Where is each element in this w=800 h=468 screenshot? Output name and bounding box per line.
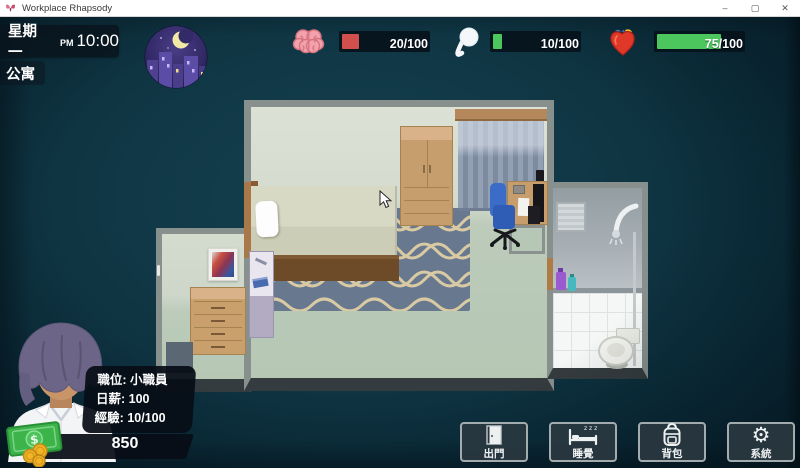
office-chair-seat [493, 205, 515, 229]
dresser[interactable] [190, 287, 246, 355]
money-icon: $ [6, 421, 68, 467]
mood-bar: 20/100 [339, 31, 430, 52]
energy-bar: 10/100 [490, 31, 581, 52]
spirit-icon [452, 27, 482, 61]
maximize-button[interactable]: ▢ [740, 0, 770, 17]
health-bar: 75/100 [654, 31, 745, 52]
info-row-experience: 經驗: 10/100 [95, 409, 193, 428]
wardrobe[interactable] [400, 126, 453, 226]
action-buttons: 出門 z z z 睡覺 背包 [460, 422, 795, 462]
sleep-button[interactable]: z z z 睡覺 [549, 422, 617, 462]
toilet[interactable] [598, 336, 634, 366]
info-row-position: 職位: 小職員 [97, 371, 195, 390]
mouse-cursor [379, 190, 392, 209]
door-icon [483, 424, 505, 446]
backpack-button[interactable]: 背包 [638, 422, 706, 462]
info-row-salary: 日薪: 100 [96, 390, 194, 409]
system-label: 系統 [751, 446, 772, 461]
shampoo-bottle-teal [568, 277, 576, 291]
player-info-panel: 職位: 小職員 日薪: 100 經驗: 10/100 [82, 366, 197, 433]
backpack-icon [661, 424, 683, 446]
location-label: 公寓 [6, 63, 35, 84]
heart-icon [607, 27, 639, 57]
pillow [255, 200, 279, 237]
sleep-label: 睡覺 [573, 446, 594, 461]
health-value: 75/100 [705, 37, 743, 51]
app-butterfly-icon [5, 3, 16, 14]
wall-accent [547, 258, 553, 290]
go-out-label: 出門 [484, 446, 505, 461]
mood-value: 20/100 [390, 37, 428, 51]
location-panel: 公寓 [0, 61, 45, 85]
pc-tower [528, 206, 540, 224]
stat-mood: 20/100 [292, 27, 430, 57]
door-handle [157, 265, 160, 276]
bed-icon: z z z [567, 424, 599, 446]
clock-label: 10:00 [76, 31, 119, 51]
time-panel: 星期一 PM 10:00 [0, 25, 119, 57]
wall-painting [208, 248, 238, 281]
weekday-label: 星期一 [8, 20, 51, 62]
svg-text:z z z: z z z [584, 425, 597, 432]
meridiem-label: PM [60, 38, 74, 48]
money-value: 850 [95, 435, 155, 453]
close-button[interactable]: ✕ [770, 0, 800, 17]
stat-health: 75/100 [607, 27, 745, 57]
minimize-button[interactable]: – [710, 0, 740, 17]
night-moon-icon [143, 24, 209, 90]
go-out-button[interactable]: 出門 [460, 422, 528, 462]
bathroom-window [556, 202, 586, 232]
system-button[interactable]: ⚙ 系統 [727, 422, 795, 462]
game-window: Workplace Rhapsody – ▢ ✕ [0, 0, 800, 468]
gear-icon: ⚙ [752, 425, 771, 446]
wall-accent [244, 182, 251, 258]
stat-energy: 10/100 [452, 27, 581, 61]
curtain-rod [455, 109, 547, 121]
window-title: Workplace Rhapsody [22, 3, 112, 14]
energy-value: 10/100 [541, 37, 579, 51]
backpack-label: 背包 [662, 446, 683, 461]
brain-icon [292, 27, 326, 57]
window-titlebar: Workplace Rhapsody – ▢ ✕ [0, 0, 800, 17]
shampoo-bottle-purple [556, 272, 566, 290]
side-shelf[interactable] [249, 251, 274, 338]
